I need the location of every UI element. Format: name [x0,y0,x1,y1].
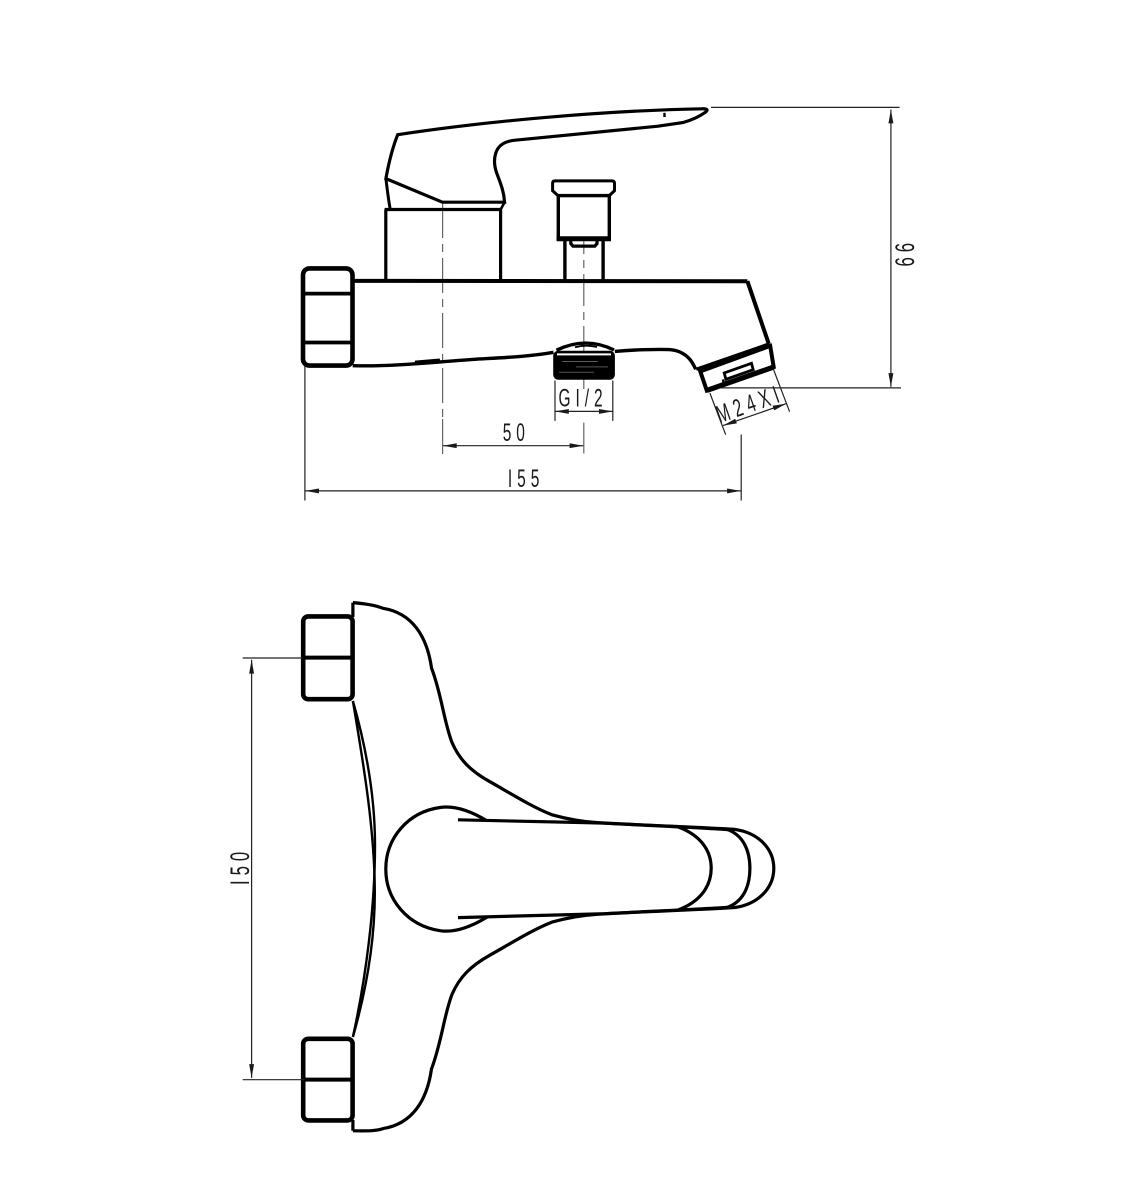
svg-text:66: 66 [890,238,920,267]
svg-text:I50: I50 [225,847,255,885]
svg-text:GI/2: GI/2 [559,385,608,413]
svg-text:50: 50 [503,419,530,447]
svg-text:I55: I55 [508,466,544,494]
